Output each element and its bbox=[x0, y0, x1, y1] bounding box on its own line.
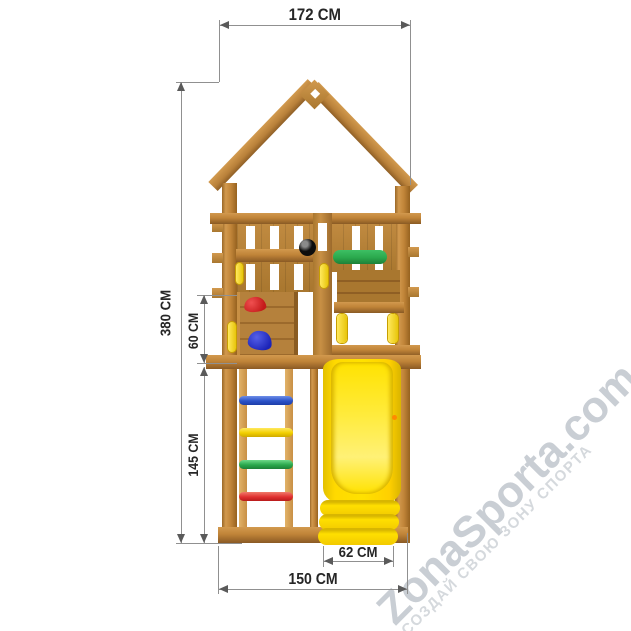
dim-base-width-line bbox=[218, 589, 408, 590]
dim-total-height-label: 380 CM bbox=[158, 290, 175, 336]
dim-ladder-height-line bbox=[204, 367, 205, 543]
dim-total-height-line bbox=[181, 82, 182, 543]
dim-arrow bbox=[200, 534, 208, 543]
dim-slide-width-label: 62 CM bbox=[323, 544, 394, 561]
dim-arrow bbox=[200, 295, 208, 304]
dim-ladder-height-label: 145 CM bbox=[185, 433, 201, 476]
dim-arrow bbox=[177, 82, 185, 91]
dim-arrow bbox=[200, 367, 208, 376]
dim-top-width-line bbox=[219, 25, 411, 26]
dim-wall-height-line bbox=[204, 295, 205, 363]
dim-arrow bbox=[200, 354, 208, 363]
dimension-annotations: 172 CM 380 CM 60 CM 145 CM 62 CM 15 bbox=[0, 0, 631, 631]
dim-ext-line bbox=[197, 363, 237, 364]
dim-top-width-label: 172 CM bbox=[219, 5, 411, 25]
diagram-canvas: ZonaSporta.com СОЗДАЙ СВОЮ ЗОНУ СПОРТА bbox=[0, 0, 631, 631]
dim-ext-line bbox=[219, 20, 220, 82]
dim-ext-line bbox=[410, 20, 411, 185]
dim-base-width-label: 150 CM bbox=[218, 571, 408, 589]
dim-arrow bbox=[177, 534, 185, 543]
dim-wall-height-label: 60 CM bbox=[185, 313, 201, 349]
dim-ext-line bbox=[176, 543, 242, 544]
